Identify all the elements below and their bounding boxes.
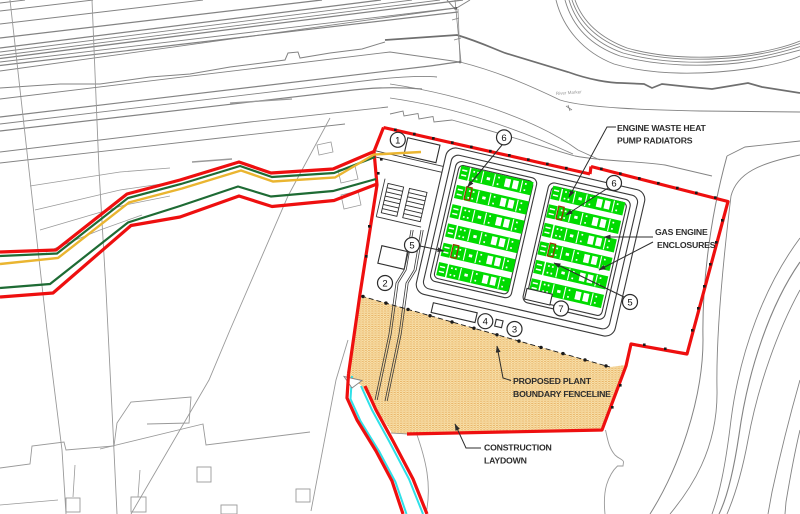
svg-text:PUMP RADIATORS: PUMP RADIATORS	[617, 136, 693, 146]
svg-text:3: 3	[512, 325, 517, 336]
svg-text:PROPOSED PLANT: PROPOSED PLANT	[513, 376, 592, 386]
svg-text:4: 4	[483, 317, 488, 328]
svg-text:1: 1	[395, 135, 400, 146]
svg-text:5: 5	[409, 241, 414, 252]
svg-text:2: 2	[382, 279, 387, 290]
svg-text:ENCLOSURES: ENCLOSURES	[657, 240, 716, 250]
svg-text:BOUNDARY FENCELINE: BOUNDARY FENCELINE	[513, 389, 611, 399]
svg-text:6: 6	[501, 133, 506, 144]
svg-text:GAS ENGINE: GAS ENGINE	[655, 227, 708, 237]
svg-text:6: 6	[611, 179, 616, 190]
svg-text:7: 7	[558, 304, 563, 315]
svg-text:5: 5	[627, 298, 632, 309]
svg-text:ENGINE WASTE HEAT: ENGINE WASTE HEAT	[617, 123, 707, 133]
svg-text:LAYDOWN: LAYDOWN	[484, 456, 527, 466]
svg-text:CONSTRUCTION: CONSTRUCTION	[484, 443, 552, 453]
